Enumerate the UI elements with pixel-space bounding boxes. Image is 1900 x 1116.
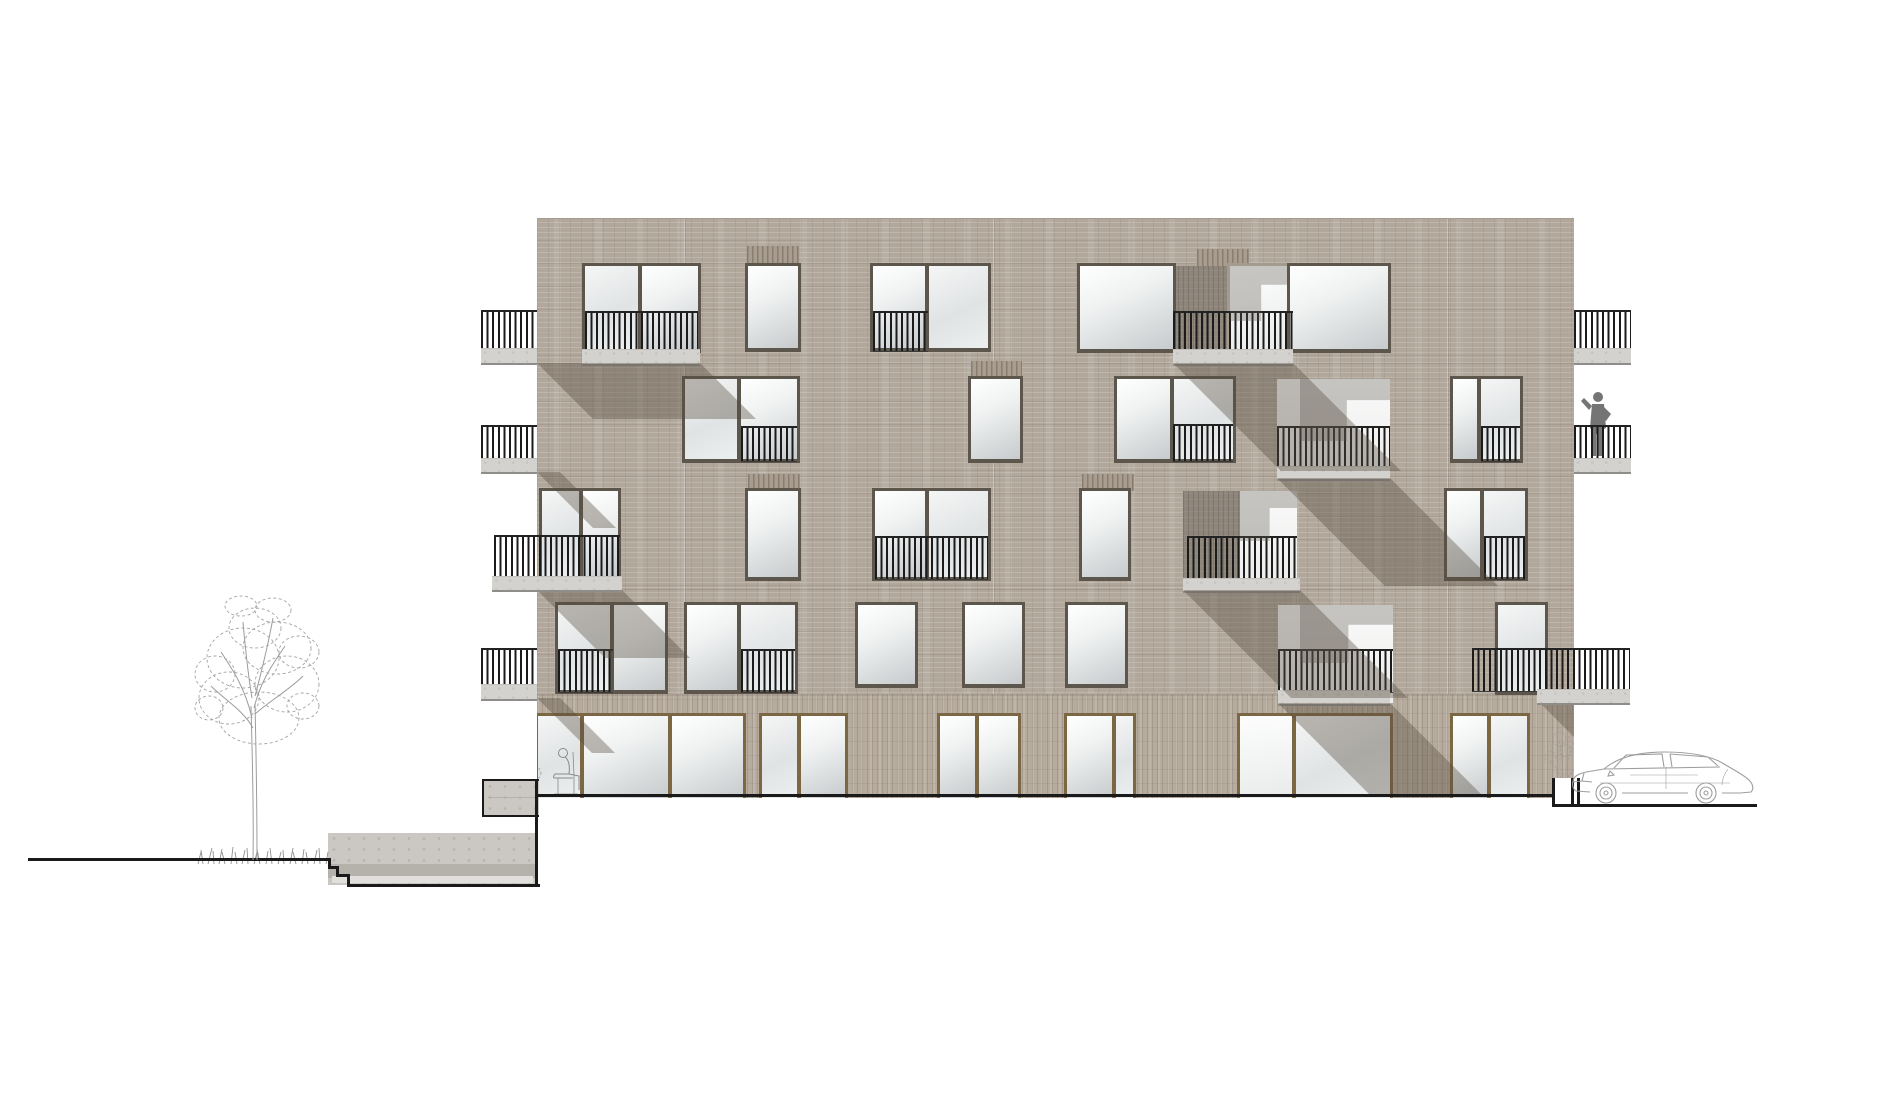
balcony-slab — [492, 576, 622, 592]
retaining-wall-strip — [332, 876, 533, 883]
balcony-railing — [481, 648, 537, 687]
section-overlay — [0, 0, 1900, 1116]
balcony-railing — [1574, 425, 1631, 461]
car-drawing — [1570, 745, 1760, 809]
corner-slab-line — [488, 797, 535, 798]
balcony-slab — [1537, 689, 1630, 705]
retaining-wall-outline — [347, 884, 540, 887]
corner-slab — [482, 779, 539, 817]
balcony-slab — [481, 684, 537, 701]
tree — [185, 588, 330, 866]
balcony-railing — [1574, 310, 1631, 351]
balcony-slab — [1574, 348, 1631, 365]
balcony-railing — [1472, 648, 1630, 692]
car — [1570, 745, 1760, 809]
elevation-drawing — [0, 0, 1900, 1116]
balcony-slab — [481, 348, 537, 365]
balcony-railing — [481, 310, 537, 351]
tree-drawing — [185, 588, 330, 866]
balcony-slab — [1574, 458, 1631, 474]
balcony-railing — [481, 425, 537, 461]
building-base-line — [537, 794, 1552, 797]
balcony-railing — [494, 535, 620, 579]
balcony-slab — [481, 458, 537, 474]
